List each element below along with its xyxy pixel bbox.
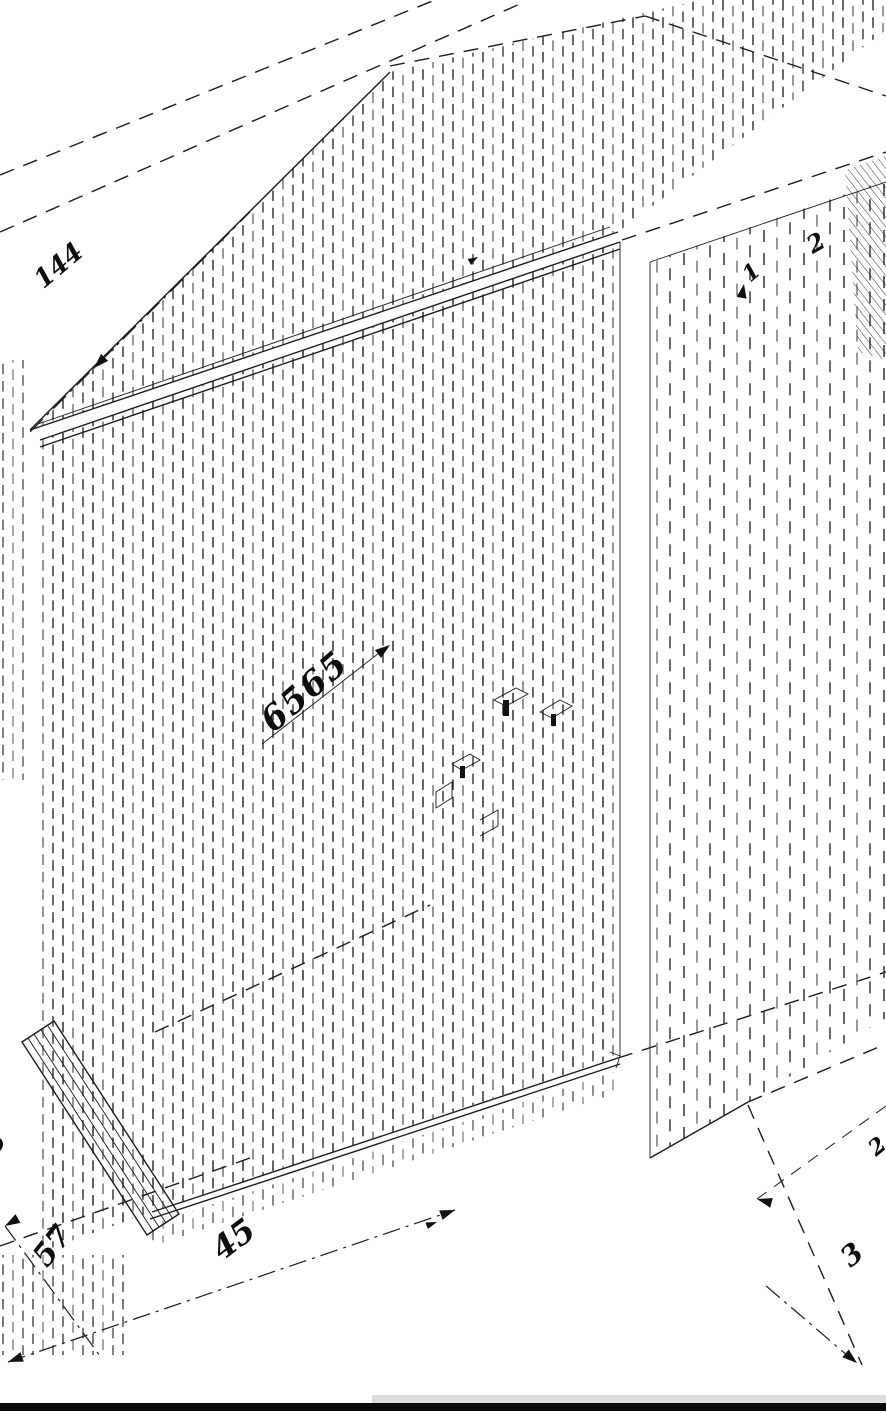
cad-viewport: 6565 144 45 57 5: [0, 0, 886, 1411]
cad-drawing: 6565 144 45 57 5: [0, 0, 886, 1411]
plinth-hatch: [0, 1255, 130, 1355]
bottom-edge-bar: [0, 1403, 886, 1411]
edge-hatch-left: [0, 360, 26, 780]
right-panel-face: [650, 180, 886, 1158]
